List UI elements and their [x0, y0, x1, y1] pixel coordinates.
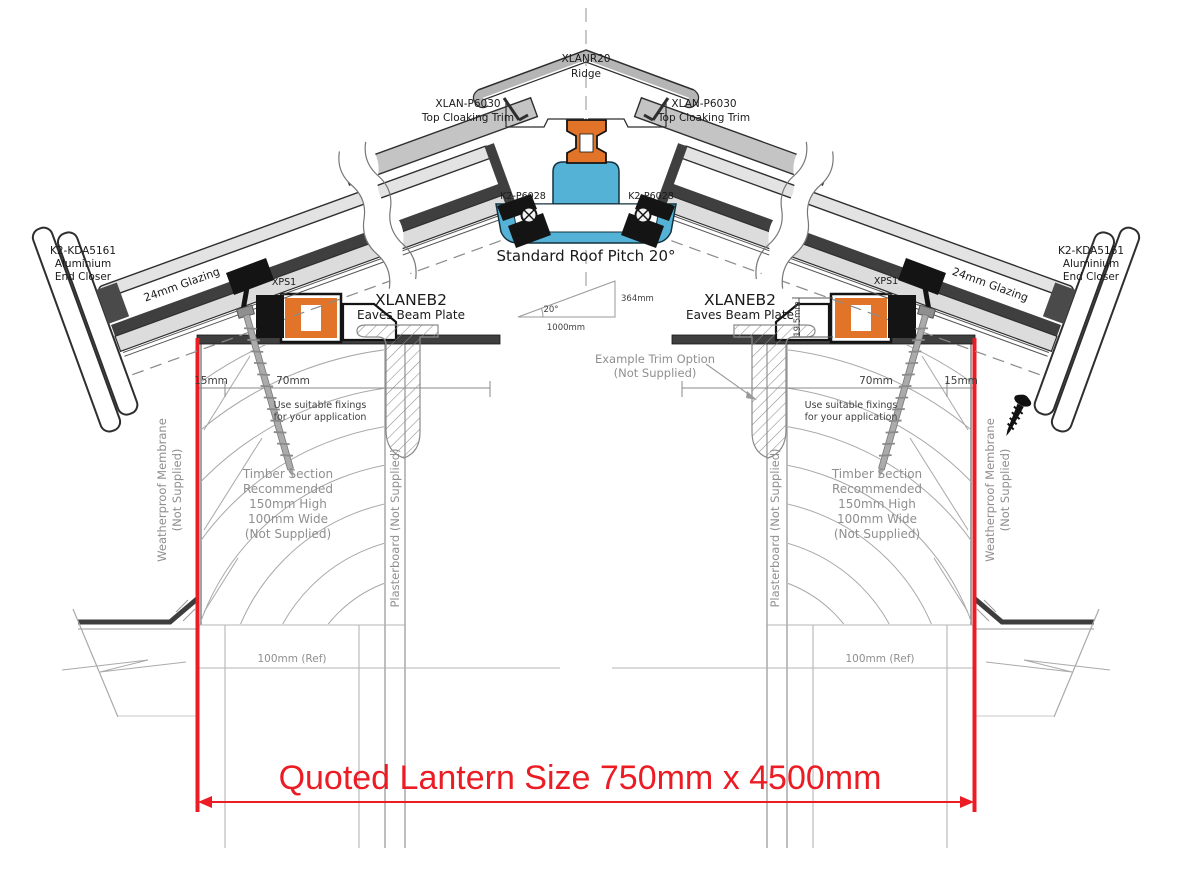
cloaking-trim-name-left: Top Cloaking Trim: [421, 112, 514, 124]
pitch-triangle-shape: [518, 281, 615, 317]
ridge-code-label: XLANR20: [562, 53, 611, 65]
fixings-note-line1-right: Use suitable fixings: [805, 400, 898, 411]
plasterboard-label-left: Plasterboard (Not Supplied): [388, 448, 402, 607]
eaves-code-right: XLANEB2: [704, 291, 776, 309]
membrane-label-left-2: (Not Supplied): [170, 449, 184, 532]
cloaking-trim-code-left: XLAN-P6030: [435, 98, 500, 110]
end-closer-line3-right: End Closer: [1063, 271, 1120, 283]
fix-zone-dim-right: 70mm: [859, 375, 893, 387]
thermal-break: [301, 331, 321, 338]
roof-deck-line: [78, 599, 197, 622]
wall-ref-dim-left: 100mm (Ref): [257, 653, 326, 665]
timber-note-right-3: 150mm High: [838, 497, 916, 511]
membrane-label-left-1: Weatherproof Membrane: [155, 418, 169, 562]
loose-screw-icon: [998, 391, 1033, 439]
quoted-size-dimension: [198, 796, 974, 808]
break-line: [73, 609, 118, 717]
end-closer-line3-left: End Closer: [55, 271, 112, 283]
end-closer-code-left: K2-KDA5161: [50, 245, 116, 257]
eaves-name-right: Eaves Beam Plate: [686, 308, 794, 322]
xps1-label-right: XPS1: [874, 276, 898, 287]
lantern-section-drawing: XLANR20 Ridge XLAN-P6030 Top Cloaking Tr…: [0, 0, 1184, 872]
thermal-break: [321, 298, 337, 338]
plasterboard-label-right: Plasterboard (Not Supplied): [768, 448, 782, 607]
xps1-clamp-base: [256, 295, 284, 338]
thermal-break: [285, 298, 301, 338]
end-closer-code-right: K2-KDA5161: [1058, 245, 1124, 257]
beam-height-dim-label: 19.5mm: [793, 301, 803, 337]
eaves-name-left: Eaves Beam Plate: [357, 308, 465, 322]
example-trim-right: [734, 325, 815, 458]
trim-option-label-1: Example Trim Option: [595, 352, 715, 366]
membrane-label-right-2: (Not Supplied): [998, 449, 1012, 532]
roof-pitch-label: Standard Roof Pitch 20°: [496, 247, 675, 265]
timber-note-left-4: 100mm Wide: [248, 512, 328, 526]
example-trim-left: [357, 325, 438, 458]
fixings-note-line2-right: for your application: [805, 412, 898, 423]
quoted-size-label: Quoted Lantern Size 750mm x 4500mm: [279, 759, 882, 797]
timber-note-right-1: Timber Section: [831, 467, 922, 481]
fixings-note-line2-left: for your application: [274, 412, 367, 423]
timber-note-right-5: (Not Supplied): [834, 527, 920, 541]
ridge-bolt-label-right: K2-P6028: [628, 191, 674, 202]
membrane-label-right-1: Weatherproof Membrane: [983, 418, 997, 562]
fix-zone-dim-left: 70mm: [276, 375, 310, 387]
timber-note-left-1: Timber Section: [242, 467, 333, 481]
pitch-rise-value: 364mm: [621, 294, 654, 304]
edge-dim-left: 15mm: [194, 375, 228, 387]
end-closer-line2-left: Aluminium: [55, 258, 111, 270]
ridge-profile-slot: [580, 134, 593, 152]
cloaking-trim-name-right: Top Cloaking Trim: [657, 112, 750, 124]
timber-note-left-5: (Not Supplied): [245, 527, 331, 541]
timber-note-left-2: Recommended: [243, 482, 333, 496]
dim-arrow-right: [960, 796, 974, 808]
thermal-break: [301, 298, 321, 305]
pitch-base-value: 1000mm: [547, 323, 585, 333]
pitch-triangle: [518, 281, 615, 317]
ridge-name-label: Ridge: [571, 68, 601, 80]
wall-ref-dim-right: 100mm (Ref): [845, 653, 914, 665]
trim-option-leader: [706, 364, 751, 396]
end-closer-line2-right: Aluminium: [1063, 258, 1119, 270]
trim-option-label-2: (Not Supplied): [614, 366, 697, 380]
fixings-note-line1-left: Use suitable fixings: [274, 400, 367, 411]
eaves-code-left: XLANEB2: [375, 291, 447, 309]
cloaking-trim-code-right: XLAN-P6030: [671, 98, 736, 110]
dim-arrow-left: [198, 796, 212, 808]
xps1-label-left: XPS1: [272, 277, 296, 288]
edge-dim-right: 15mm: [944, 375, 978, 387]
timber-note-right-2: Recommended: [832, 482, 922, 496]
timber-note-left-3: 150mm High: [249, 497, 327, 511]
lantern-section-page: XLANR20 Ridge XLAN-P6030 Top Cloaking Tr…: [0, 0, 1184, 872]
pitch-angle-value: 20°: [543, 305, 558, 315]
timber-note-right-4: 100mm Wide: [837, 512, 917, 526]
break-zigzag: [62, 660, 186, 672]
ridge-bolt-label-left: K2-P6028: [500, 191, 546, 202]
ridge-carrier-upper: [553, 158, 619, 205]
